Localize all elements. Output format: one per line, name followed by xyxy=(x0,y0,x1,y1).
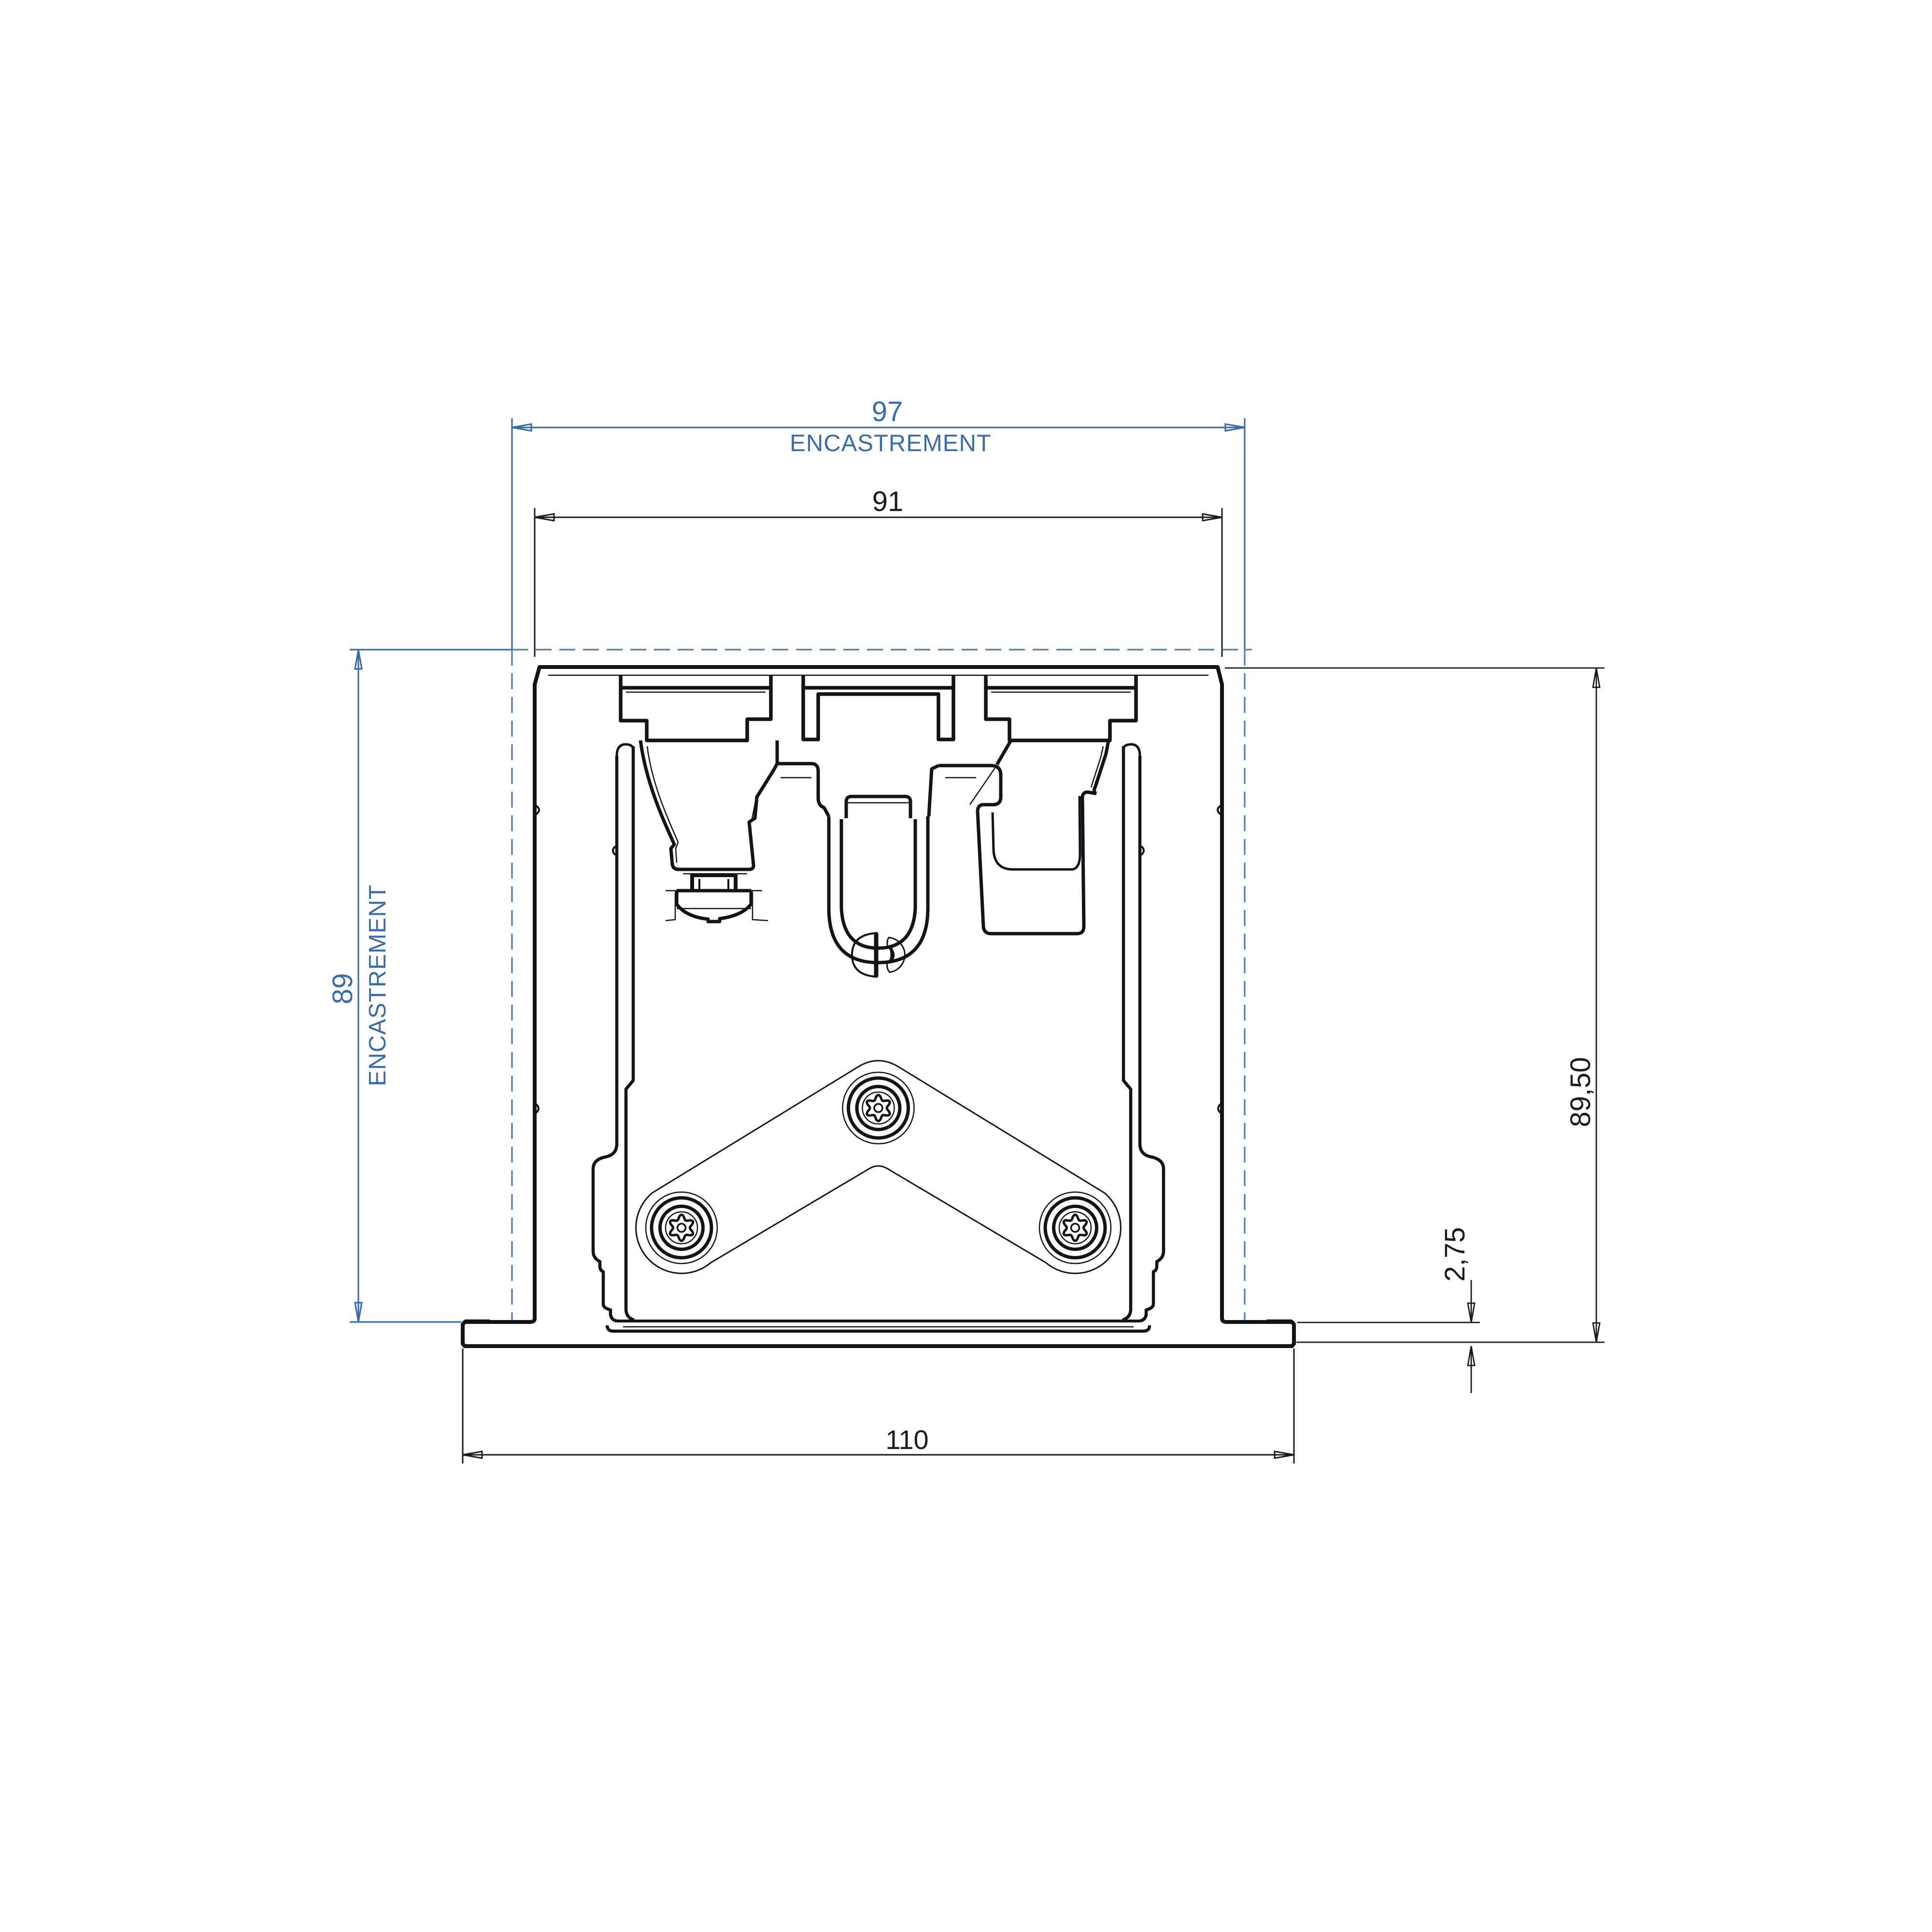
svg-text:89: 89 xyxy=(327,973,358,1005)
svg-text:91: 91 xyxy=(872,486,904,517)
svg-text:110: 110 xyxy=(885,1424,928,1455)
svg-text:89,50: 89,50 xyxy=(1565,1057,1596,1127)
svg-text:ENCASTREMENT: ENCASTREMENT xyxy=(790,430,992,456)
svg-text:97: 97 xyxy=(872,396,903,427)
svg-text:2,75: 2,75 xyxy=(1439,1227,1471,1282)
svg-text:ENCASTREMENT: ENCASTREMENT xyxy=(365,884,391,1086)
